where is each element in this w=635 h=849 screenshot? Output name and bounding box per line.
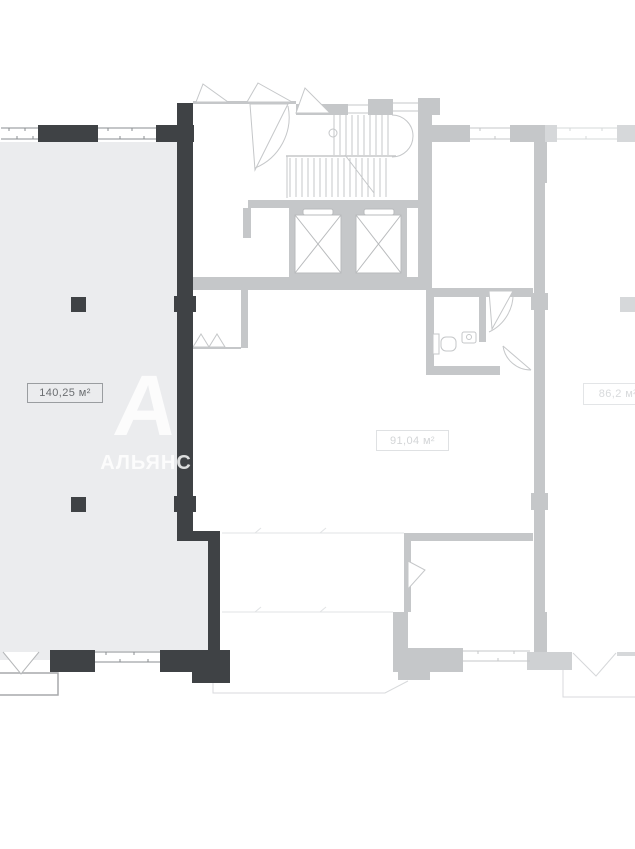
floorplan-drawing (0, 0, 635, 849)
area-label-unit-91[interactable]: 91,04 м² (376, 430, 449, 451)
staircase (286, 115, 413, 198)
floorplan-page: А АЛЬЯНС 140,25 м² 91,04 м² 86,2 м² (0, 0, 635, 849)
area-label-unit-140[interactable]: 140,25 м² (27, 383, 103, 403)
terrace-outlines (0, 670, 635, 697)
area-label-unit-86[interactable]: 86,2 м² (583, 383, 635, 405)
door-swing (573, 653, 616, 676)
unit-91-hit[interactable] (222, 290, 532, 648)
elevators (289, 208, 407, 279)
